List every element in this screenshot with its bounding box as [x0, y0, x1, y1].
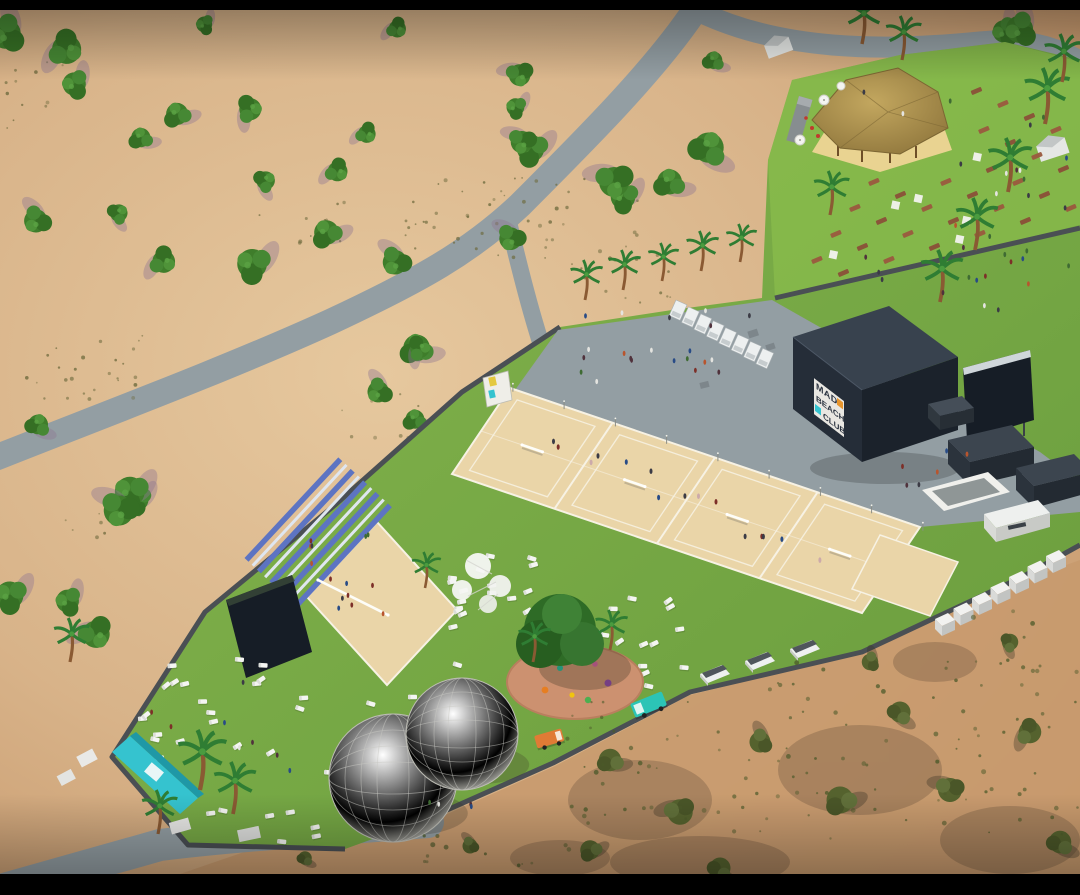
bottom-vignette — [0, 794, 1080, 874]
court-sign-board — [483, 371, 512, 407]
aerial-render: MAD BEACH CLUB — [0, 0, 1080, 895]
render-viewport: MAD BEACH CLUB — [0, 0, 1080, 895]
letterbox-top — [0, 0, 1080, 10]
letterbox-bottom — [0, 874, 1080, 895]
top-vignette — [0, 10, 1080, 80]
